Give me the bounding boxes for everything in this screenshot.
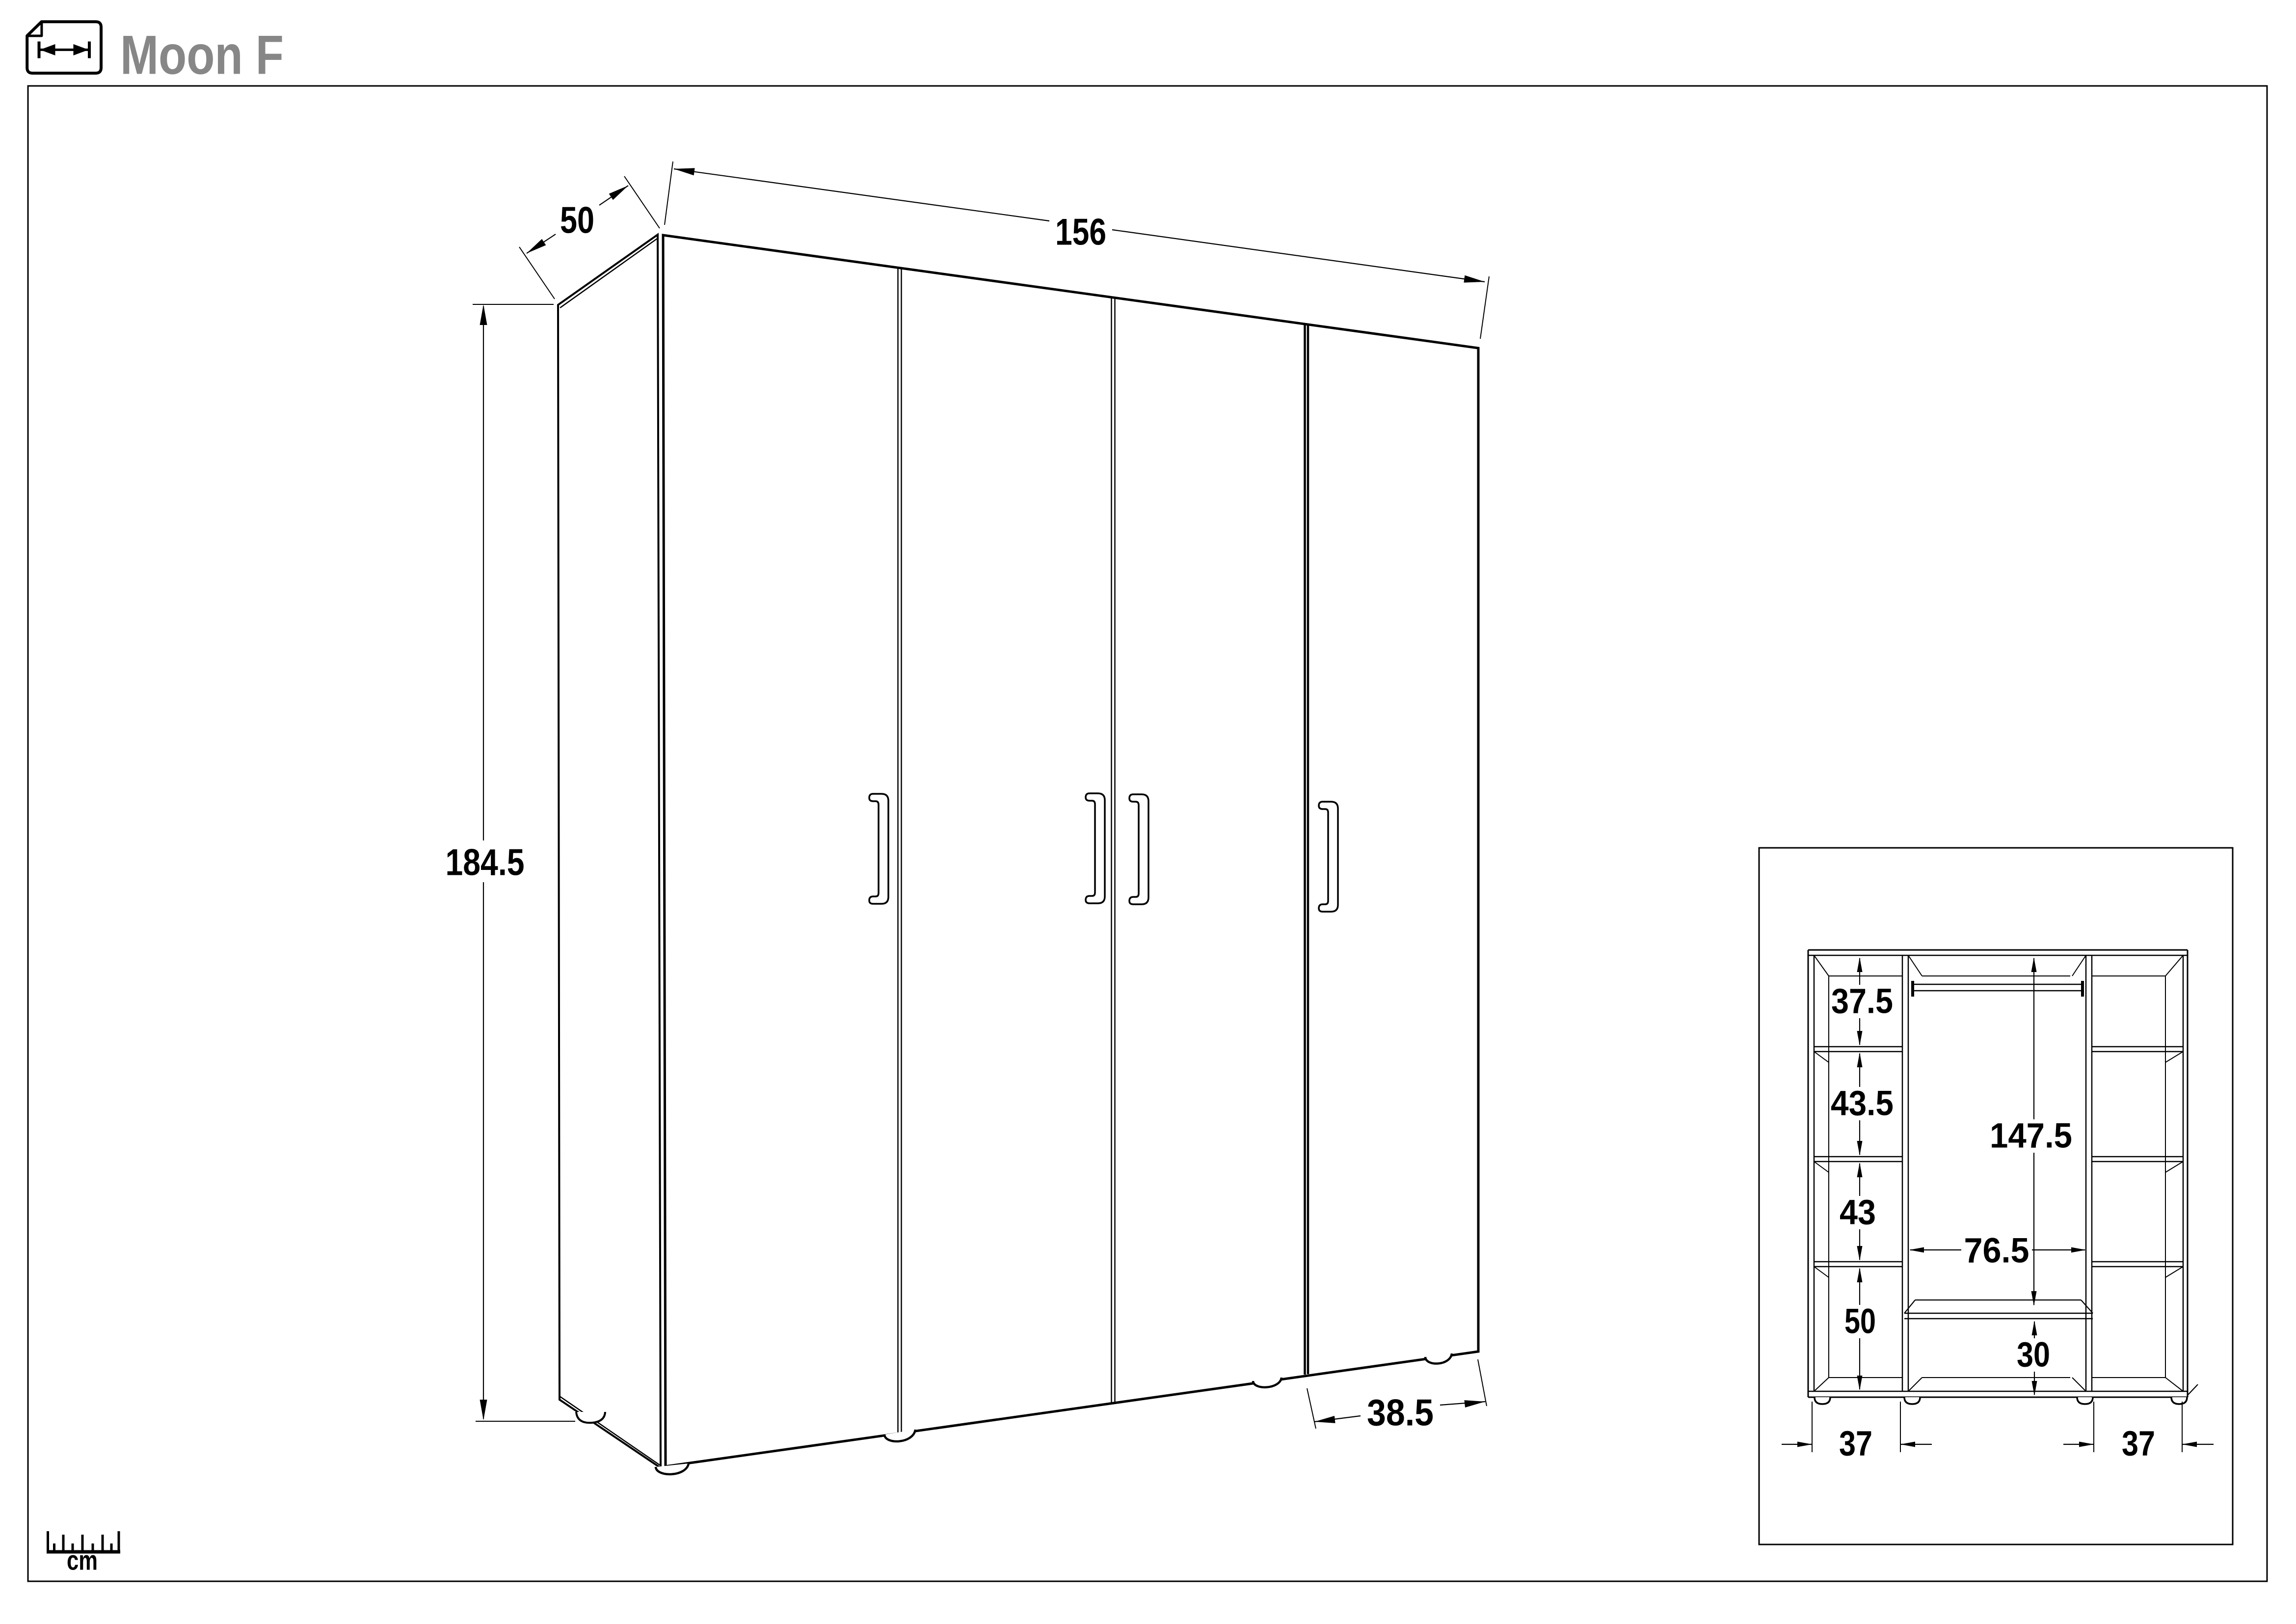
svg-text:Moon F: Moon F xyxy=(120,25,284,86)
svg-text:147.5: 147.5 xyxy=(1990,1117,2072,1156)
svg-text:184.5: 184.5 xyxy=(446,842,525,884)
svg-text:76.5: 76.5 xyxy=(1964,1232,2029,1271)
svg-text:37.5: 37.5 xyxy=(1831,982,1893,1021)
svg-text:37: 37 xyxy=(2122,1425,2155,1463)
svg-text:50: 50 xyxy=(1844,1302,1876,1341)
svg-text:43: 43 xyxy=(1840,1193,1876,1232)
svg-text:50: 50 xyxy=(560,200,594,242)
svg-text:30: 30 xyxy=(2017,1336,2050,1375)
svg-text:37: 37 xyxy=(1839,1425,1872,1463)
svg-text:156: 156 xyxy=(1055,212,1106,253)
svg-text:38.5: 38.5 xyxy=(1367,1392,1434,1434)
svg-text:43.5: 43.5 xyxy=(1831,1084,1894,1123)
svg-text:cm: cm xyxy=(67,1545,98,1576)
